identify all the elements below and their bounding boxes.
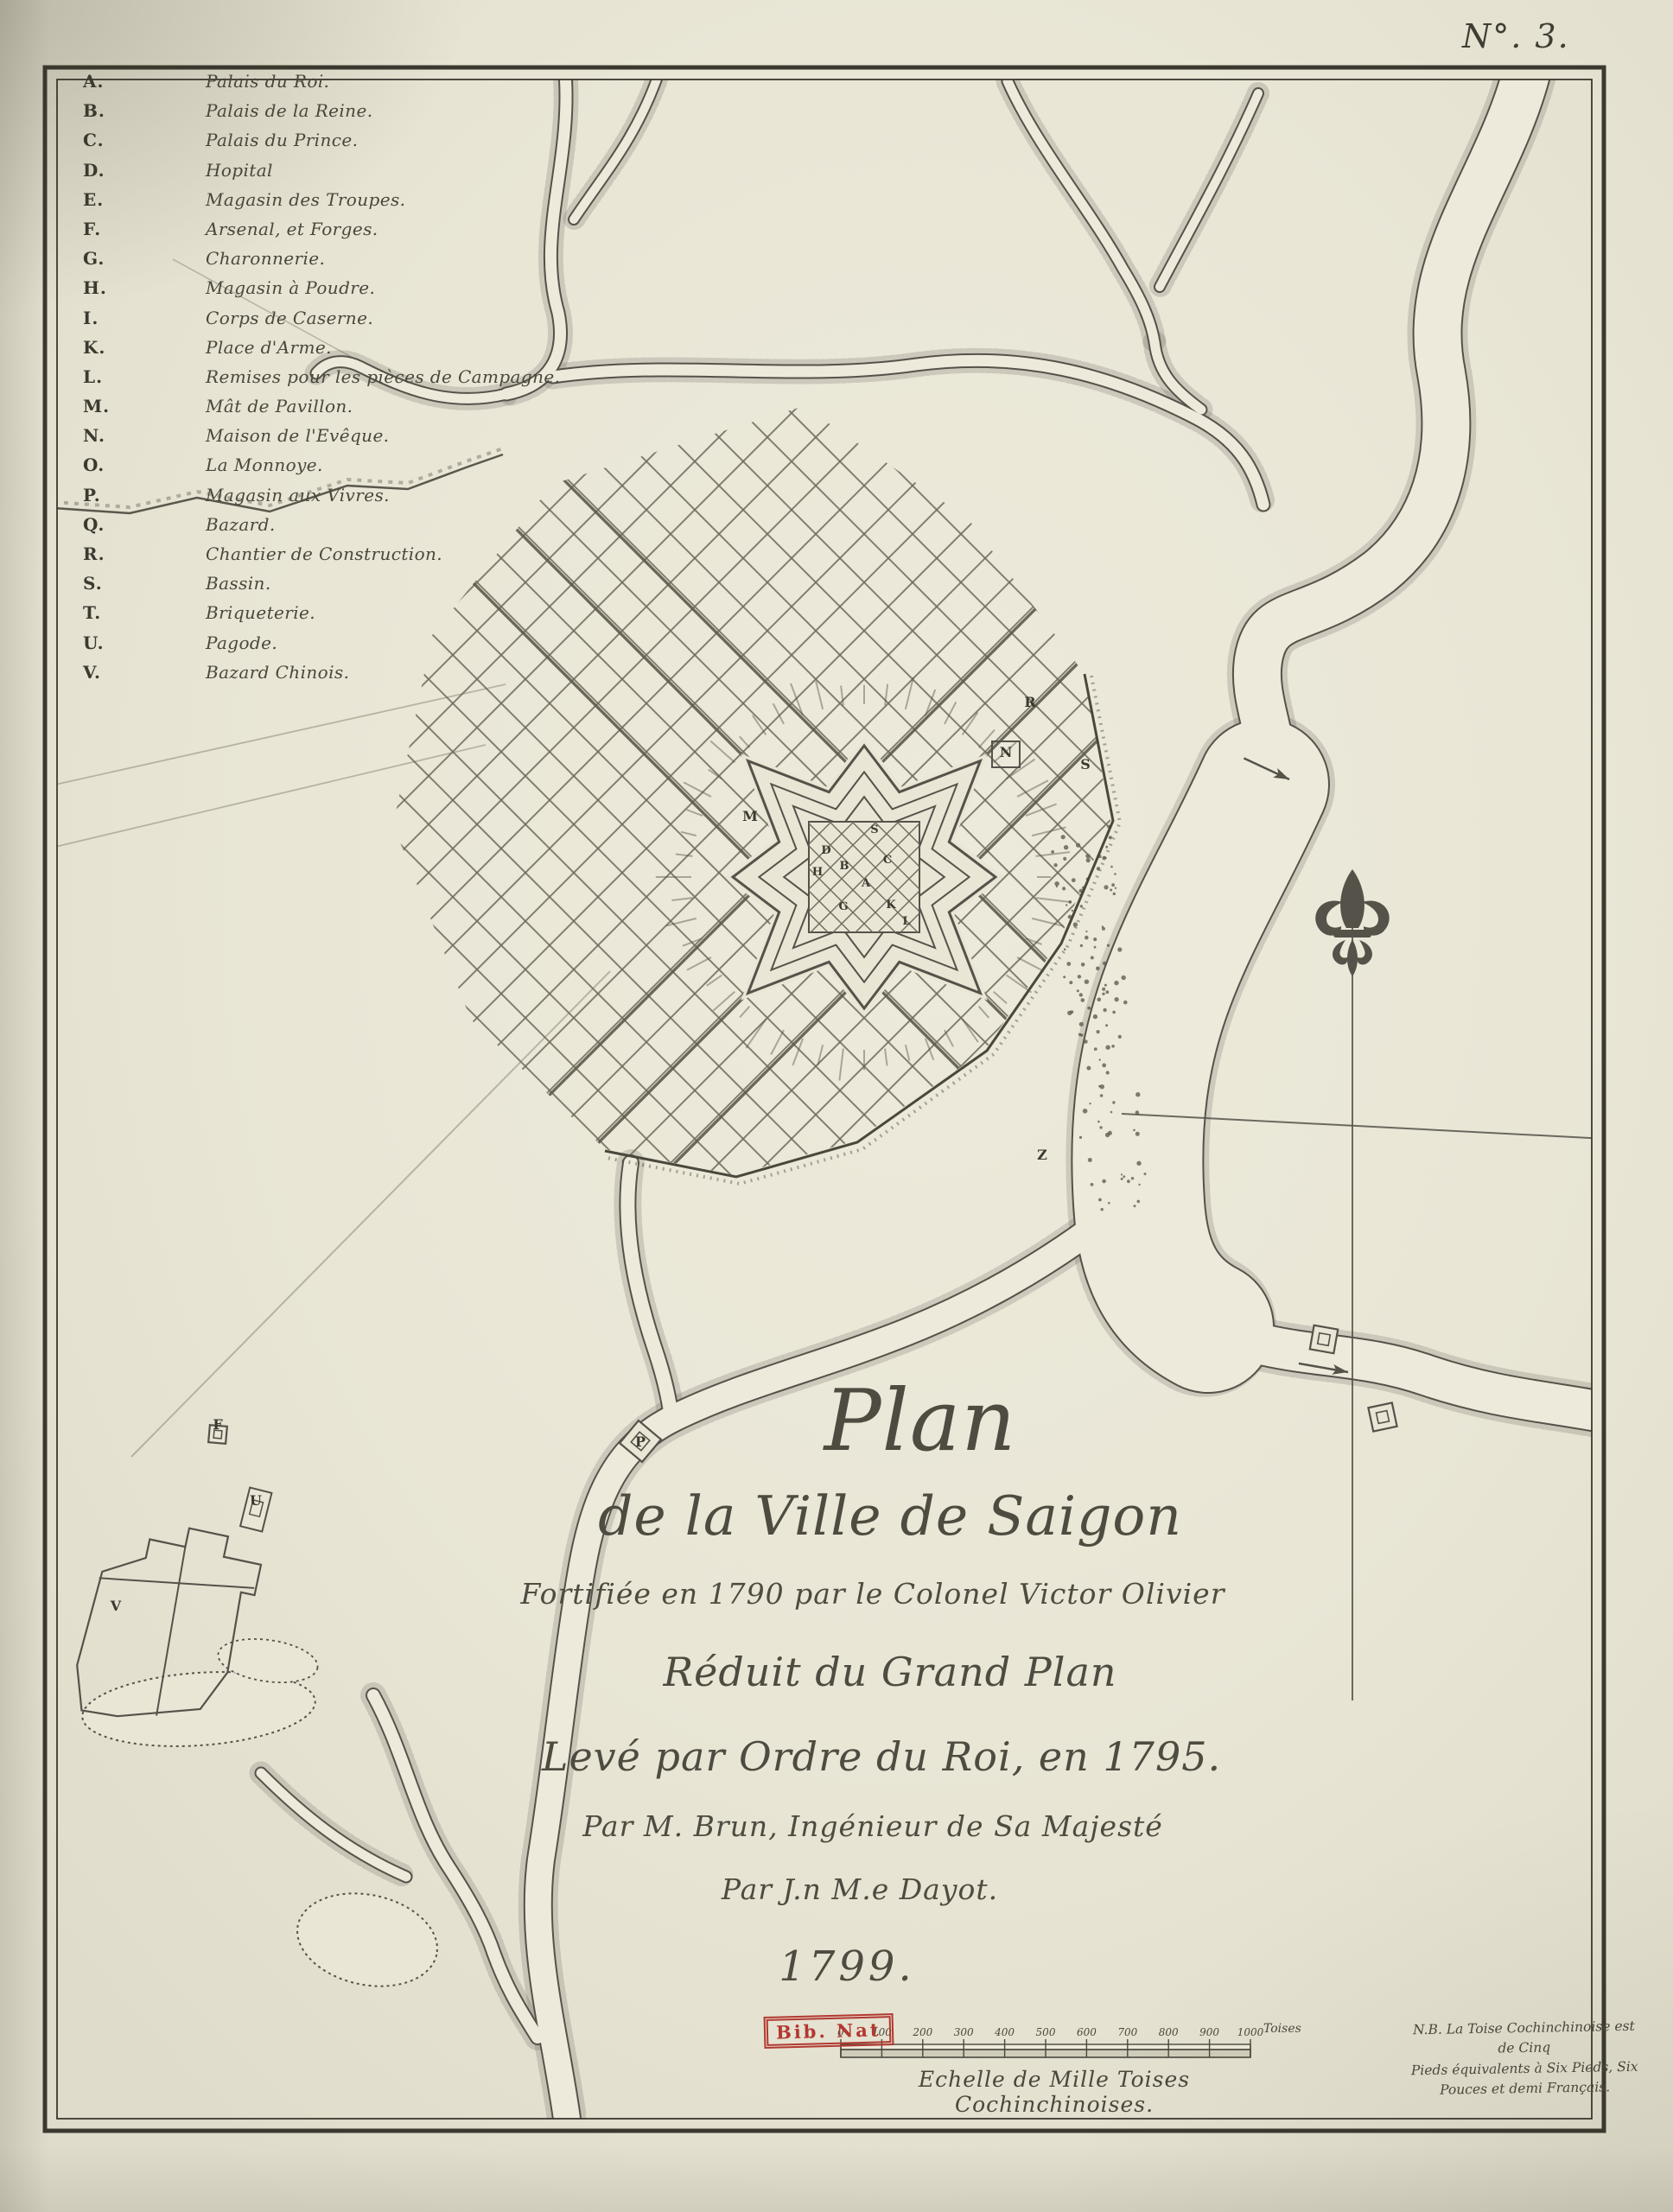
legend-row: E.Magasin des Troupes. (83, 189, 567, 219)
page-number: N°. 3. (1462, 17, 1570, 55)
scale-tick-label: 600 (1077, 2026, 1097, 2038)
nb-note-line: N.B. La Toise Cochinchinoise est de Cinq (1404, 2017, 1644, 2061)
legend-row: V.Bazard Chinois. (83, 662, 567, 691)
citadel-letter: S (870, 823, 878, 836)
legend-label: Magasin à Poudre. (206, 277, 375, 298)
legend-label: La Monnoye. (206, 454, 323, 475)
legend-key: E. (83, 189, 123, 210)
map-letter: R (1024, 694, 1036, 710)
title-line: Levé par Ordre du Roi, en 1795. (458, 1733, 1305, 1780)
legend-label: Chantier de Construction. (206, 543, 442, 564)
map-letter: M (742, 808, 758, 824)
legend-label: Corps de Caserne. (206, 308, 373, 328)
citadel-letter: H (812, 866, 823, 879)
scale-tick-label: 1000 (1237, 2026, 1264, 2038)
legend-key: D. (83, 160, 123, 181)
legend-row: C.Palais du Prince. (83, 130, 567, 159)
legend-row: N.Maison de l'Evêque. (83, 425, 567, 454)
legend-row: Q.Bazard. (83, 514, 567, 543)
legend-row: M.Mât de Pavillon. (83, 396, 567, 425)
legend-key: U. (83, 632, 123, 653)
title-line: 1799. (423, 1942, 1270, 1991)
legend-row: O.La Monnoye. (83, 454, 567, 484)
scale-tick-label: 800 (1159, 2026, 1179, 2038)
title-line: Fortifiée en 1790 par le Colonel Victor … (449, 1577, 1296, 1611)
legend-label: Palais du Prince. (206, 130, 358, 150)
legend-row: B.Palais de la Reine. (83, 100, 567, 130)
legend-row: F.Arsenal, et Forges. (83, 219, 567, 248)
legend-key: A. (83, 71, 123, 92)
legend-row: P.Magasin aux Vivres. (83, 485, 567, 514)
legend-key: P. (83, 485, 123, 505)
legend-row: T.Briqueterie. (83, 602, 567, 632)
citadel-letter: C (883, 854, 892, 867)
legend-key: N. (83, 425, 123, 446)
scale-tick-label: 700 (1117, 2026, 1137, 2038)
scale-tick-label: 200 (912, 2026, 932, 2038)
citadel-letter: G (838, 900, 848, 913)
map-letter: S (1080, 756, 1091, 772)
legend-label: Palais du Roi. (206, 71, 329, 92)
scale-unit-label: Toises (1263, 2022, 1301, 2036)
legend-label: Briqueterie. (206, 602, 315, 623)
nb-note: N.B. La Toise Cochinchinoise est de Cinq… (1404, 2017, 1644, 2101)
legend-label: Bazard Chinois. (206, 662, 349, 683)
title-line: Réduit du Grand Plan (467, 1649, 1314, 1695)
legend-key: L. (83, 366, 123, 387)
title-line: Par J.n M.e Dayot. (436, 1872, 1283, 1906)
legend-row: S.Bassin. (83, 573, 567, 602)
legend-key: C. (83, 130, 123, 150)
citadel-letter: D (821, 844, 830, 857)
citadel-letter: A (861, 877, 871, 890)
legend-key: K. (83, 337, 123, 358)
fort-icon (1368, 1402, 1396, 1431)
legend: A.Palais du Roi.B.Palais de la Reine.C.P… (83, 71, 567, 691)
map-letter: N (1000, 744, 1013, 760)
legend-row: R.Chantier de Construction. (83, 543, 567, 573)
map-letter: Z (1037, 1147, 1047, 1163)
legend-label: Maison de l'Evêque. (206, 425, 389, 446)
legend-row: A.Palais du Roi. (83, 71, 567, 100)
bib-nat-stamp: Bib. Nat (764, 2013, 894, 2049)
title-line: Plan (497, 1379, 1344, 1465)
legend-key: F. (83, 219, 123, 239)
legend-key: I. (83, 308, 123, 328)
map-sheet: SDBCAGKLHRNSMZPFUV 010020030040050060070… (0, 0, 1673, 2212)
legend-key: Q. (83, 514, 123, 535)
legend-label: Pagode. (206, 632, 277, 653)
nb-note-line: Pouces et demi Français. (1405, 2076, 1644, 2101)
legend-key: S. (83, 573, 123, 594)
legend-label: Magasin aux Vivres. (206, 485, 390, 505)
legend-label: Charonnerie. (206, 248, 325, 269)
scale-caption: Echelle de Mille Toises Cochinchinoises. (830, 2067, 1279, 2117)
legend-row: K.Place d'Arme. (83, 337, 567, 366)
legend-label: Place d'Arme. (206, 337, 332, 358)
fleur-de-lis-icon (1315, 869, 1390, 976)
scale-tick-label: 400 (994, 2026, 1015, 2038)
legend-row: G.Charonnerie. (83, 248, 567, 277)
legend-label: Hopital (206, 160, 273, 181)
legend-label: Bazard. (206, 514, 276, 535)
legend-label: Mât de Pavillon. (206, 396, 353, 416)
scale-tick-label: 900 (1199, 2026, 1219, 2038)
legend-key: O. (83, 454, 123, 475)
title-block: Plande la Ville de SaigonFortifiée en 17… (449, 1379, 1296, 1991)
legend-key: V. (83, 662, 123, 683)
legend-key: B. (83, 100, 123, 121)
title-line: de la Ville de Saigon (467, 1484, 1314, 1548)
legend-key: R. (83, 543, 123, 564)
legend-row: I.Corps de Caserne. (83, 308, 567, 337)
legend-key: H. (83, 277, 123, 298)
legend-label: Arsenal, et Forges. (206, 219, 378, 239)
citadel-letter: K (886, 899, 896, 912)
map-letter: V (110, 1598, 122, 1614)
map-letter: F (213, 1416, 223, 1433)
legend-label: Bassin. (206, 573, 271, 594)
legend-label: Remises pour les pièces de Campagne. (206, 366, 560, 387)
citadel-letter: L (902, 915, 910, 928)
marsh-islands (80, 1633, 446, 1999)
scale-bar: 01002003004005006007008009001000 Toises (837, 2022, 1301, 2057)
legend-row: L.Remises pour les pièces de Campagne. (83, 366, 567, 396)
title-line: Par M. Brun, Ingénieur de Sa Majesté (449, 1809, 1296, 1843)
legend-label: Magasin des Troupes. (206, 189, 405, 210)
legend-key: T. (83, 602, 123, 623)
legend-row: H.Magasin à Poudre. (83, 277, 567, 307)
legend-row: U.Pagode. (83, 632, 567, 662)
fort-icon (1310, 1325, 1338, 1353)
legend-key: G. (83, 248, 123, 269)
citadel-letter: B (840, 860, 849, 873)
legend-key: M. (83, 396, 123, 416)
legend-label: Palais de la Reine. (206, 100, 372, 121)
legend-row: D.Hopital (83, 160, 567, 189)
scale-tick-label: 500 (1036, 2026, 1056, 2038)
map-letter: U (250, 1492, 262, 1509)
scale-tick-label: 300 (954, 2026, 974, 2038)
